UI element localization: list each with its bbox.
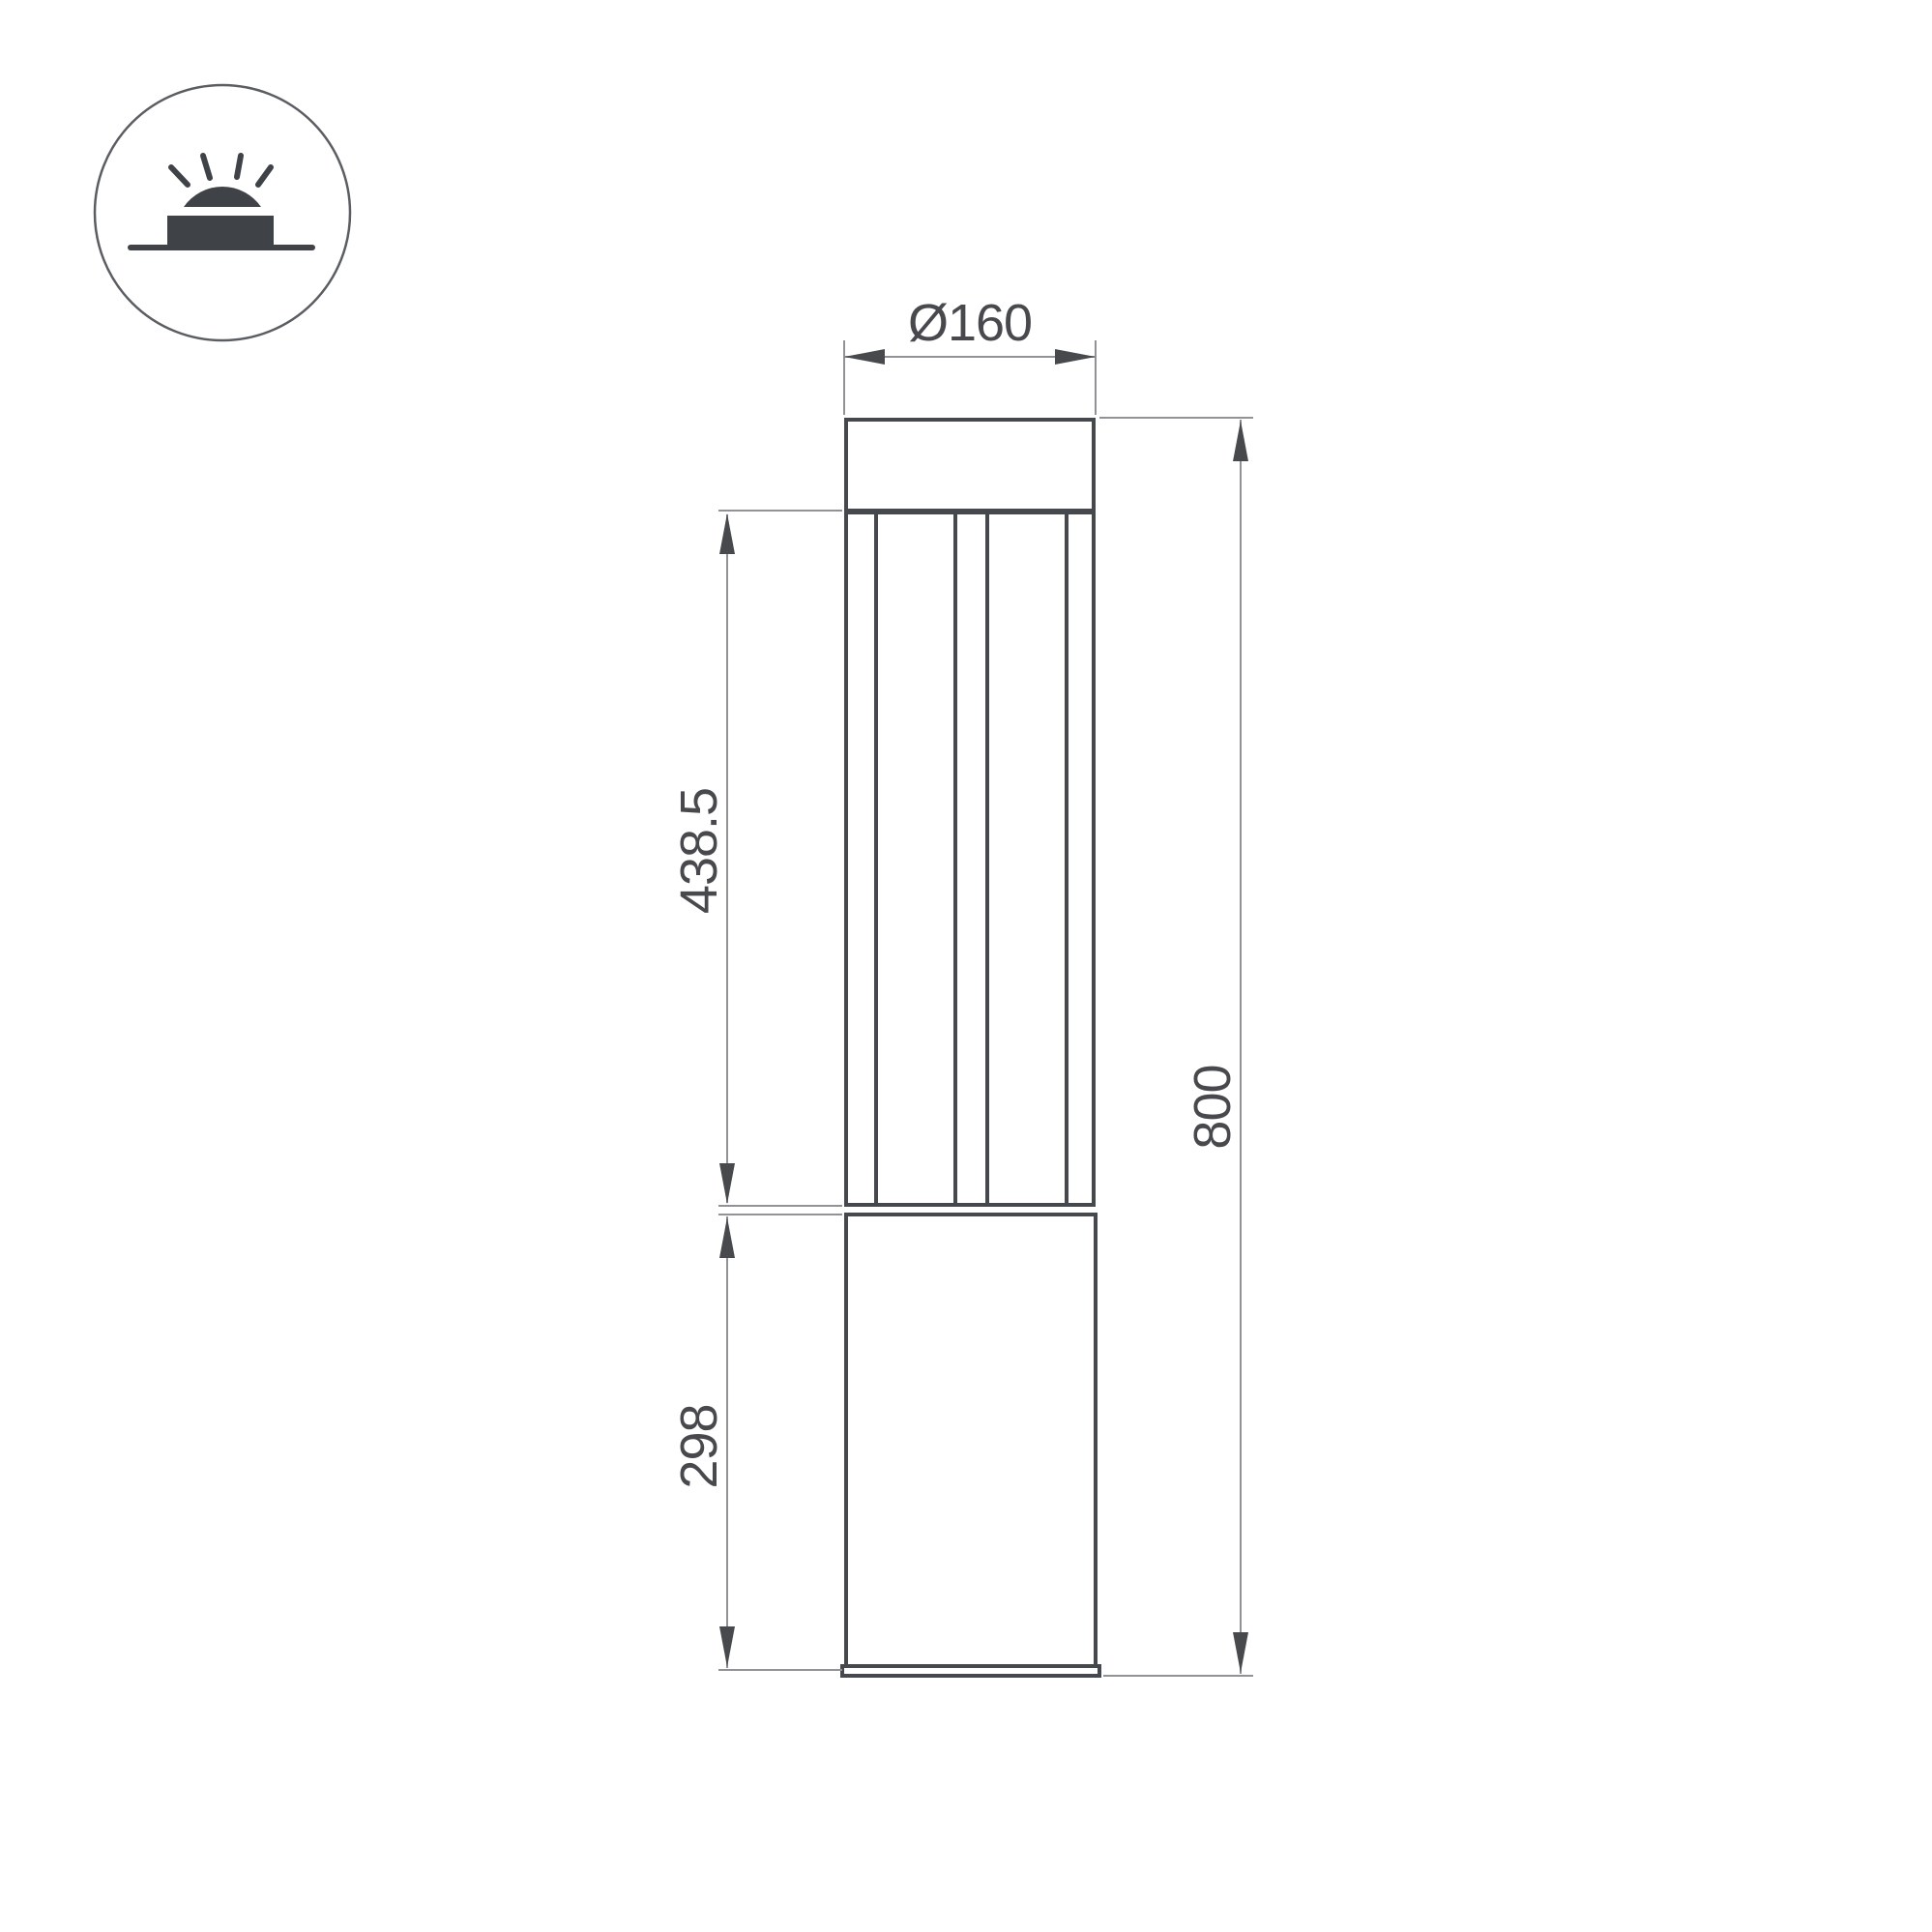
diameter-label: Ø160 bbox=[908, 294, 1032, 352]
surface-light-badge bbox=[95, 85, 350, 340]
arrow-right-icon bbox=[1055, 349, 1096, 365]
base-section-label: 298 bbox=[670, 1404, 728, 1488]
fixture-base-plate bbox=[842, 1666, 1099, 1676]
dimension-base-section: 298 bbox=[670, 1215, 842, 1670]
arrow-down-icon bbox=[719, 1163, 735, 1204]
arrow-left-icon bbox=[844, 349, 885, 365]
lamp-dome-icon bbox=[184, 187, 261, 207]
fixture-cap bbox=[846, 420, 1094, 511]
light-rays-icon bbox=[171, 156, 271, 185]
arrow-down-icon bbox=[719, 1626, 735, 1667]
arrow-up-icon bbox=[719, 513, 735, 554]
arrow-up-icon bbox=[1233, 421, 1248, 461]
arrow-up-icon bbox=[719, 1217, 735, 1258]
fixture-base bbox=[846, 1215, 1096, 1666]
arrow-down-icon bbox=[1233, 1632, 1248, 1673]
technical-drawing: Ø160 438.5 298 800 bbox=[0, 0, 1932, 1932]
dimension-diameter: Ø160 bbox=[844, 294, 1096, 415]
drawing-canvas: Ø160 438.5 298 800 bbox=[0, 0, 1932, 1932]
lamp-body-icon bbox=[167, 216, 274, 247]
dimension-upper-section: 438.5 bbox=[670, 511, 842, 1206]
upper-section-label: 438.5 bbox=[670, 788, 728, 914]
lamp-vertical-ribs bbox=[876, 514, 1067, 1203]
dimension-total-height: 800 bbox=[1099, 418, 1253, 1676]
badge-circle-icon bbox=[95, 85, 350, 340]
total-height-label: 800 bbox=[1184, 1065, 1242, 1149]
bollard-fixture bbox=[842, 420, 1099, 1676]
fixture-lamp-section bbox=[846, 512, 1094, 1205]
